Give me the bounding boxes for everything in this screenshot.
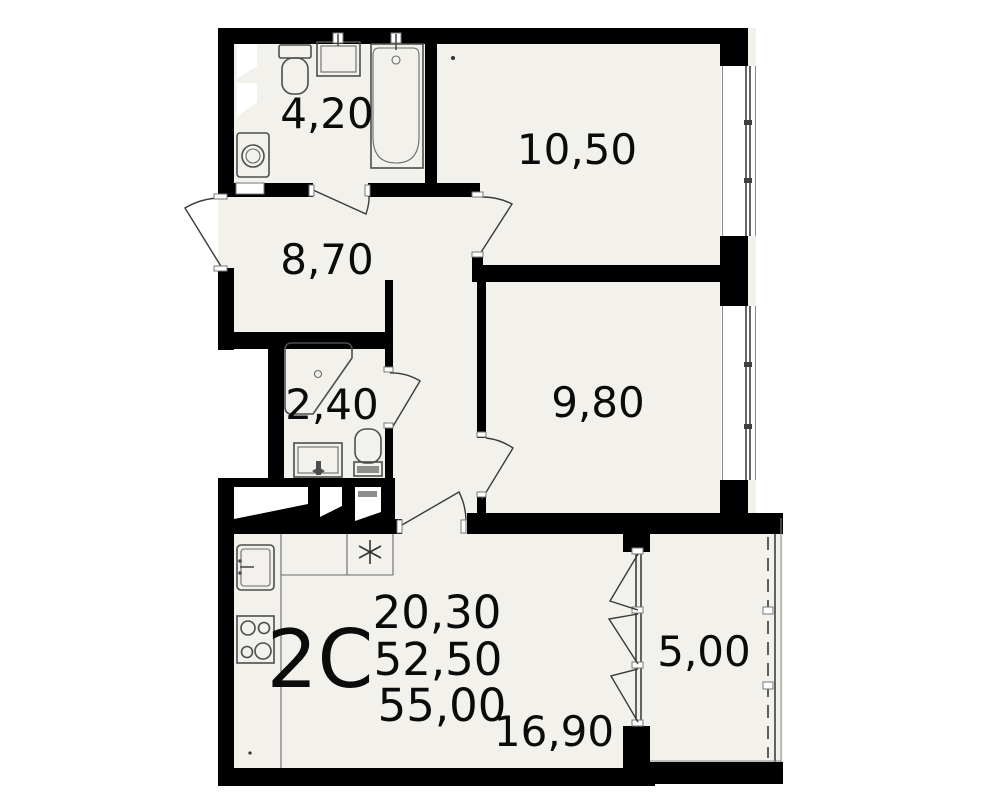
- glazing-sill: [763, 682, 773, 689]
- door-sill: [214, 194, 227, 199]
- area-label-room2: 9,80: [551, 378, 645, 427]
- wall-exterior-left-lower: [218, 478, 234, 784]
- wall-exterior-bottom: [218, 768, 655, 786]
- door-sill: [214, 266, 227, 271]
- door-sill: [461, 520, 466, 533]
- wall-corner-top-right: [720, 28, 748, 66]
- wall-bathroom-bottom-left: [218, 183, 313, 197]
- unit-type-label: 2C: [267, 613, 374, 706]
- area-label-kitchen-living: 16,90: [494, 707, 614, 756]
- floor-plan-svg: 4,20 10,50 8,70 2,40 9,80 16,90 5,00 2C …: [0, 0, 1000, 800]
- window-room1: [721, 66, 756, 236]
- area-label-balcony: 5,00: [657, 627, 751, 676]
- door-sill: [365, 185, 370, 196]
- wall-niche: [236, 183, 264, 194]
- area-label-hallway: 8,70: [280, 235, 374, 284]
- window-mullion: [744, 120, 752, 125]
- glazing-sill: [632, 548, 643, 554]
- wall-right-below-window: [720, 480, 748, 514]
- area-label-bathroom: 4,20: [280, 89, 374, 138]
- wall-notch-vertical: [268, 349, 284, 479]
- wall-exterior-top: [218, 28, 734, 44]
- wall-room1-room2: [472, 265, 748, 282]
- area-label-showerroom: 2,40: [285, 380, 379, 429]
- window-mullion: [744, 424, 752, 429]
- wall-balcony-divider-bottom: [623, 726, 650, 768]
- door-sill: [384, 423, 393, 428]
- wall-hallway-showerroom: [218, 332, 393, 349]
- wall-room2-left: [477, 282, 486, 438]
- glazing-sill: [763, 607, 773, 614]
- entrance-door-arc: [185, 198, 222, 268]
- door-sill: [309, 185, 314, 196]
- wall-bathroom-right: [425, 44, 437, 183]
- floor-plan-canvas: 4,20 10,50 8,70 2,40 9,80 16,90 5,00 2C …: [0, 0, 1000, 800]
- wall-exterior-left-upper: [218, 28, 234, 197]
- door-sill: [384, 367, 393, 372]
- window-room2: [721, 306, 756, 480]
- wall-bathroom-bottom-right: [368, 183, 480, 197]
- unit-living-area: 20,30: [373, 586, 502, 639]
- door-sill: [472, 252, 483, 257]
- plan-dot: [451, 56, 455, 60]
- wall-room2-bottom: [467, 513, 783, 534]
- vent-shelf: [358, 491, 377, 497]
- unit-total-area: 55,00: [378, 679, 507, 732]
- door-sill: [477, 492, 486, 497]
- wall-showerroom-right-upper: [385, 280, 393, 368]
- door-sill: [477, 432, 486, 437]
- wall-balcony-bottom: [648, 762, 783, 784]
- door-sill: [472, 192, 483, 197]
- door-sill: [397, 520, 402, 533]
- wall-room2-door-post: [477, 497, 486, 514]
- wall-showerroom-right-lower: [385, 428, 393, 478]
- area-label-room1: 10,50: [517, 125, 637, 174]
- window-mullion: [744, 362, 752, 367]
- plan-dot: [248, 751, 251, 754]
- window-mullion: [744, 178, 752, 183]
